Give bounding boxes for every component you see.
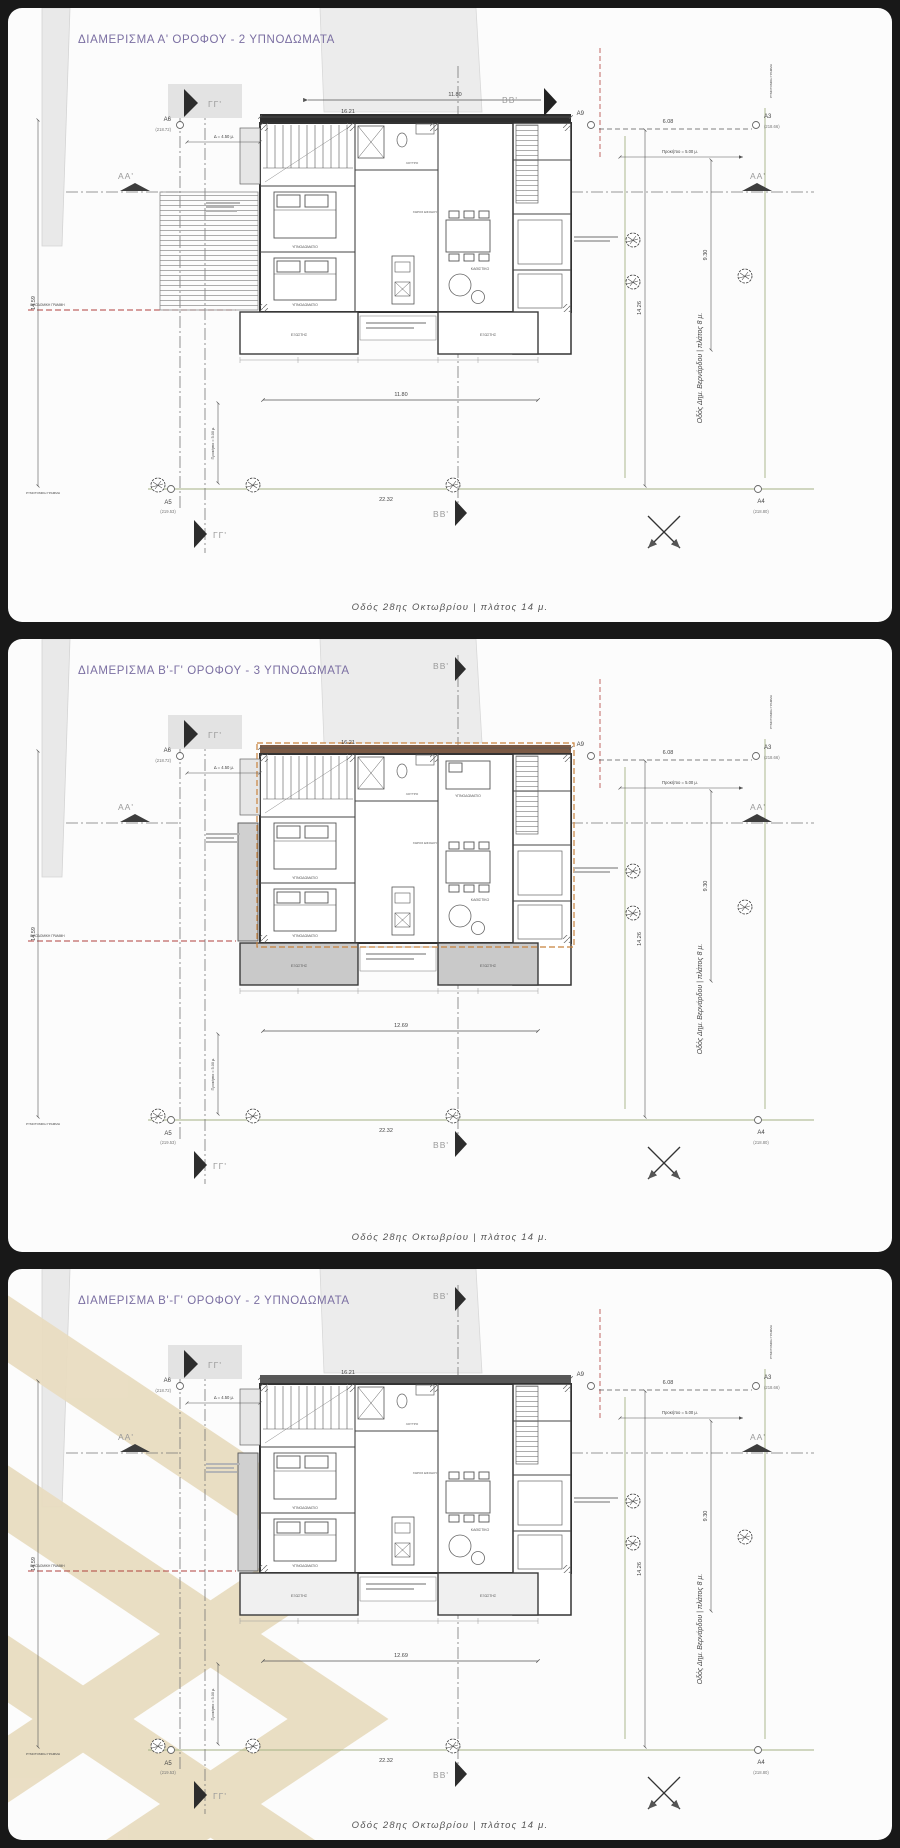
service-stair [516, 1386, 538, 1464]
dim-right-outer: 14.26 [637, 301, 643, 315]
bed-double-1 [274, 192, 336, 238]
bb-top-right-label: BB' [502, 95, 518, 105]
room-label-living: ΚΑΘΙΣΤΙΚΟ [471, 898, 490, 902]
north-arrow-icon [648, 516, 680, 548]
gg-bottom-label: ΓΓ' [213, 530, 227, 540]
bed-double-1 [274, 823, 336, 869]
roof-band [260, 1375, 571, 1384]
roof-band [260, 114, 571, 123]
marker-a9: A9 [577, 742, 585, 748]
bb-bottom-label: BB' [433, 1140, 449, 1150]
marker-a3: A3 [764, 1375, 772, 1381]
dim-chain [240, 988, 538, 994]
marker-a5: A5 [164, 1131, 172, 1137]
bb-bottom-label: BB' [433, 1770, 449, 1780]
dim-bottom-inner: 12.69 [394, 1023, 408, 1029]
marker-a3-elev: (218.66) [764, 124, 780, 129]
street-label-right: Οδός Δημ. Βερνάρδου | πλάτος 8 μ. [696, 313, 704, 424]
bb-bottom-label: BB' [433, 509, 449, 519]
tree-icon [626, 233, 640, 247]
room-label-bedroom1: ΥΠΝΟΔΩΜΑΤΙΟ [292, 245, 318, 249]
dim-bottom-plot: 22.32 [379, 497, 393, 503]
side-porch [240, 1389, 260, 1445]
gg-top-label: ΓΓ' [208, 730, 222, 740]
bed-double-1 [274, 1453, 336, 1499]
room-label-bedroom2: ΥΠΝΟΔΩΜΑΤΙΟ [292, 934, 318, 938]
gg-top-label: ΓΓ' [208, 99, 222, 109]
dim-plot-top: 16.21 [341, 1370, 355, 1376]
marker-a5: A5 [164, 1761, 172, 1767]
delta-note: Δ = 4.50 μ. [214, 765, 234, 770]
bed-double-3 [446, 761, 490, 789]
room-label-balcony-left: ΕΞΩΣΤΗΣ [291, 964, 308, 968]
dim-street-top: 6.08 [663, 750, 674, 756]
building: ΥΠΝΟΔΩΜΑΤΙΟ ΥΠΝΟΔΩΜΑΤΙΟ ΚΑΘΙΣΤΙΚΟ ΧΩΡΟΣ … [160, 114, 618, 363]
room-label-balcony-right: ΕΞΩΣΤΗΣ [480, 333, 497, 337]
marker-a5-elev: (219.53) [160, 509, 176, 514]
marker-a3-elev: (218.66) [764, 755, 780, 760]
dim-left: 14.59 [31, 296, 37, 310]
roof-band [260, 745, 571, 754]
dim-right-inner: 9.30 [703, 250, 709, 261]
marker-a5-elev: (219.53) [160, 1140, 176, 1145]
reg-line-label-right: ΡΥΜΟΤΟΜΙΚΗ ΓΡΑΜΜΗ [769, 1325, 773, 1359]
bb-flag-icon [455, 500, 467, 526]
room-label-bedroom2: ΥΠΝΟΔΩΜΑΤΙΟ [292, 303, 318, 307]
aa-right-label: AA' [750, 802, 766, 812]
street-label-bottom: Οδός 28ης Οκτωβρίου | πλάτος 14 μ. [8, 602, 892, 613]
tree-icon [738, 900, 752, 914]
room-label-bedroom1: ΥΠΝΟΔΩΜΑΤΙΟ [292, 1506, 318, 1510]
marker-a9: A9 [577, 1372, 585, 1378]
side-balcony-slab [238, 823, 258, 941]
marker-a6-elev: (218.72) [155, 1388, 171, 1393]
dim-chain [240, 357, 538, 363]
delta-note: Δ = 4.50 μ. [214, 134, 234, 139]
bb-top-label: BB' [433, 1291, 449, 1301]
delta-note: Δ = 4.50 μ. [214, 1395, 234, 1400]
aa-flag-icon [120, 183, 150, 191]
bed-double-2 [274, 1519, 336, 1561]
street-label-bottom: Οδός 28ης Οκτωβρίου | πλάτος 14 μ. [8, 1232, 892, 1243]
marker-a6: A6 [164, 1378, 172, 1384]
setback-top-note: Προκήπιο = 5.00 μ. [662, 149, 698, 154]
marker-a4-elev: (218.80) [753, 509, 769, 514]
marker-a4: A4 [757, 1130, 765, 1136]
room-label-entry: ΧΩΡΟΣ ΕΙΣΟΔΟΥ [413, 210, 437, 214]
room-label-entry: ΧΩΡΟΣ ΕΙΣΟΔΟΥ [413, 1471, 437, 1475]
street-label-right: Οδός Δημ. Βερνάρδου | πλάτος 8 μ. [696, 944, 704, 1055]
aa-flag-icon [742, 814, 772, 822]
dim-street-top: 6.08 [663, 1380, 674, 1386]
setback-left-note: Προκήπιο = 5.00 μ. [211, 1058, 215, 1091]
setback-top-note: Προκήπιο = 5.00 μ. [662, 780, 698, 785]
floor-plan-drawing: ΟΙΚΟΔΟΜΙΚΗ ΓΡΑΜΜΗ ΡΥΜΟΤΟΜΙΚΗ ΓΡΑΜΜΗ ΡΥΜΟ… [8, 639, 892, 1252]
reg-line-label-right: ΡΥΜΟΤΟΜΙΚΗ ΓΡΑΜΜΗ [769, 695, 773, 729]
aa-left-label: AA' [118, 1432, 134, 1442]
gg-top-label: ΓΓ' [208, 1360, 222, 1370]
bed-double-2 [274, 889, 336, 931]
tree-icon [626, 1494, 640, 1508]
marker-a5-elev: (219.53) [160, 1770, 176, 1775]
marker-a9: A9 [577, 111, 585, 117]
dim-right-outer: 14.26 [637, 1562, 643, 1576]
marker-a3-elev: (218.66) [764, 1385, 780, 1390]
bb-flag-icon [455, 1761, 467, 1787]
aa-flag-icon [742, 1444, 772, 1452]
marker-a3: A3 [764, 114, 772, 120]
room-label-balcony-left: ΕΞΩΣΤΗΣ [291, 333, 308, 337]
panel-title: ΔΙΑΜΕΡΙΣΜΑ Β'-Γ' ΟΡΟΦΟΥ - 2 ΥΠΝΟΔΩΜΑΤΑ [78, 1295, 350, 1307]
building: ΥΠΝΟΔΩΜΑΤΙΟ ΥΠΝΟΔΩΜΑΤΙΟ ΚΑΘΙΣΤΙΚΟ ΧΩΡΟΣ … [206, 1375, 618, 1624]
tree-icon [626, 1536, 640, 1550]
balcony-note-box [360, 1577, 436, 1601]
floor-plan-panel-1: ΟΙΚΟΔΟΜΙΚΗ ΓΡΑΜΜΗ ΡΥΜΟΤΟΜΙΚΗ ΓΡΑΜΜΗ ΡΥΜΟ… [8, 8, 892, 622]
service-stair [516, 756, 538, 834]
bb-flag-icon [455, 1131, 467, 1157]
marker-a6-elev: (218.72) [155, 758, 171, 763]
room-label-balcony-left: ΕΞΩΣΤΗΣ [291, 1594, 308, 1598]
aa-right-label: AA' [750, 1432, 766, 1442]
side-balcony-slab [238, 1453, 258, 1571]
tree-icon [246, 1739, 260, 1753]
building: ΥΠΝΟΔΩΜΑΤΙΟ ΥΠΝΟΔΩΜΑΤΙΟ ΥΠΝΟΔΩΜΑΤΙΟ ΚΑΘΙ… [206, 743, 618, 994]
aa-left-label: AA' [118, 171, 134, 181]
room-label-bedroom2: ΥΠΝΟΔΩΜΑΤΙΟ [292, 1564, 318, 1568]
setback-left-note: Προκήπιο = 5.00 μ. [211, 427, 215, 460]
aa-left-label: AA' [118, 802, 134, 812]
street-label-right: Οδός Δημ. Βερνάρδου | πλάτος 8 μ. [696, 1574, 704, 1685]
room-label-bedroom1: ΥΠΝΟΔΩΜΑΤΙΟ [292, 876, 318, 880]
dim-left: 14.59 [31, 1557, 37, 1571]
room-label-living: ΚΑΘΙΣΤΙΚΟ [471, 1528, 490, 1532]
room-label-bedroom3: ΥΠΝΟΔΩΜΑΤΙΟ [455, 794, 481, 798]
aa-flag-icon [120, 814, 150, 822]
marker-a4-elev: (218.80) [753, 1140, 769, 1145]
reg-line-label-bottom: ΡΥΜΟΤΟΜΙΚΗ ΓΡΑΜΜΗ [26, 1122, 60, 1126]
room-label-balcony-right: ΕΞΩΣΤΗΣ [480, 964, 497, 968]
pergola-ramp [160, 192, 258, 310]
gg-marker-box [168, 1345, 242, 1379]
tree-icon [151, 1739, 165, 1753]
room-label-entry: ΧΩΡΟΣ ΕΙΣΟΔΟΥ [413, 841, 437, 845]
north-arrow-icon [648, 1147, 680, 1179]
room-label-bath: ΛΟΥΤΡΟ [406, 792, 419, 796]
room-label-living: ΚΑΘΙΣΤΙΚΟ [471, 267, 490, 271]
panel-title: ΔΙΑΜΕΡΙΣΜΑ Β'-Γ' ΟΡΟΦΟΥ - 3 ΥΠΝΟΔΩΜΑΤΑ [78, 665, 350, 677]
marker-a5: A5 [164, 500, 172, 506]
dim-right-inner: 9.30 [703, 1511, 709, 1522]
dim-right-inner: 9.30 [703, 881, 709, 892]
reg-line-label-bottom: ΡΥΜΟΤΟΜΙΚΗ ΓΡΑΜΜΗ [26, 1752, 60, 1756]
panel-title: ΔΙΑΜΕΡΙΣΜΑ Α' ΟΡΟΦΟΥ - 2 ΥΠΝΟΔΩΜΑΤΑ [78, 34, 335, 46]
dim-plot-top: 16.21 [341, 740, 355, 746]
plans-page: ΟΙΚΟΔΟΜΙΚΗ ΓΡΑΜΜΗ ΡΥΜΟΤΟΜΙΚΗ ΓΡΑΜΜΗ ΡΥΜΟ… [0, 0, 900, 1848]
tree-icon [626, 275, 640, 289]
service-stair [516, 125, 538, 203]
reg-line-label-bottom: ΡΥΜΟΤΟΜΙΚΗ ΓΡΑΜΜΗ [26, 491, 60, 495]
gg-bottom-label: ΓΓ' [213, 1791, 227, 1801]
tree-icon [738, 269, 752, 283]
side-porch [240, 128, 260, 184]
tree-icon [246, 478, 260, 492]
room-label-bath: ΛΟΥΤΡΟ [406, 1422, 419, 1426]
tree-icon [246, 1109, 260, 1123]
aa-flag-icon [742, 183, 772, 191]
tree-icon [151, 1109, 165, 1123]
north-arrow-icon [648, 1777, 680, 1809]
dim-bottom-inner: 11.80 [394, 392, 407, 398]
floor-plan-drawing: ΟΙΚΟΔΟΜΙΚΗ ΓΡΑΜΜΗ ΡΥΜΟΤΟΜΙΚΗ ΓΡΑΜΜΗ ΡΥΜΟ… [8, 8, 892, 622]
floor-plan-panel-2: ΟΙΚΟΔΟΜΙΚΗ ΓΡΑΜΜΗ ΡΥΜΟΤΟΜΙΚΗ ΓΡΑΜΜΗ ΡΥΜΟ… [8, 639, 892, 1252]
reg-line-label-right: ΡΥΜΟΤΟΜΙΚΗ ΓΡΑΜΜΗ [769, 64, 773, 98]
room-label-balcony-right: ΕΞΩΣΤΗΣ [480, 1594, 497, 1598]
floor-plan-drawing: ΟΙΚΟΔΟΜΙΚΗ ΓΡΑΜΜΗ ΡΥΜΟΤΟΜΙΚΗ ΓΡΑΜΜΗ ΡΥΜΟ… [8, 1269, 892, 1840]
dim-top-inner: 11.80 [448, 92, 461, 98]
dim-left: 14.59 [31, 927, 37, 941]
floor-plan-panel-3: ΟΙΚΟΔΟΜΙΚΗ ΓΡΑΜΜΗ ΡΥΜΟΤΟΜΙΚΗ ΓΡΑΜΜΗ ΡΥΜΟ… [8, 1269, 892, 1840]
gg-bottom-label: ΓΓ' [213, 1161, 227, 1171]
marker-a4: A4 [757, 1760, 765, 1766]
aa-right-label: AA' [750, 171, 766, 181]
bb-flag-icon [544, 88, 557, 116]
marker-a6: A6 [164, 748, 172, 754]
gg-marker-box [168, 84, 242, 118]
dim-bottom-plot: 22.32 [379, 1758, 393, 1764]
setback-top-note: Προκήπιο = 5.00 μ. [662, 1410, 698, 1415]
dim-chain [240, 1618, 538, 1624]
gg-marker-box [168, 715, 242, 749]
marker-a4: A4 [757, 499, 765, 505]
balcony-note-box [360, 316, 436, 340]
dim-bottom-plot: 22.32 [379, 1128, 393, 1134]
marker-a6: A6 [164, 117, 172, 123]
tree-icon [738, 1530, 752, 1544]
dim-street-top: 6.08 [663, 119, 674, 125]
room-label-bath: ΛΟΥΤΡΟ [406, 161, 419, 165]
bb-top-label: BB' [433, 661, 449, 671]
tree-icon [151, 478, 165, 492]
bed-double-2 [274, 258, 336, 300]
marker-a6-elev: (218.72) [155, 127, 171, 132]
dim-right-outer: 14.26 [637, 932, 643, 946]
dim-plot-top: 16.21 [341, 109, 355, 115]
tree-icon [626, 906, 640, 920]
street-label-bottom: Οδός 28ης Οκτωβρίου | πλάτος 14 μ. [8, 1820, 892, 1831]
marker-a3: A3 [764, 745, 772, 751]
setback-left-note: Προκήπιο = 5.00 μ. [211, 1688, 215, 1721]
tree-icon [626, 864, 640, 878]
marker-a4-elev: (218.80) [753, 1770, 769, 1775]
dim-bottom-inner: 12.69 [394, 1653, 408, 1659]
balcony-note-box [360, 947, 436, 971]
